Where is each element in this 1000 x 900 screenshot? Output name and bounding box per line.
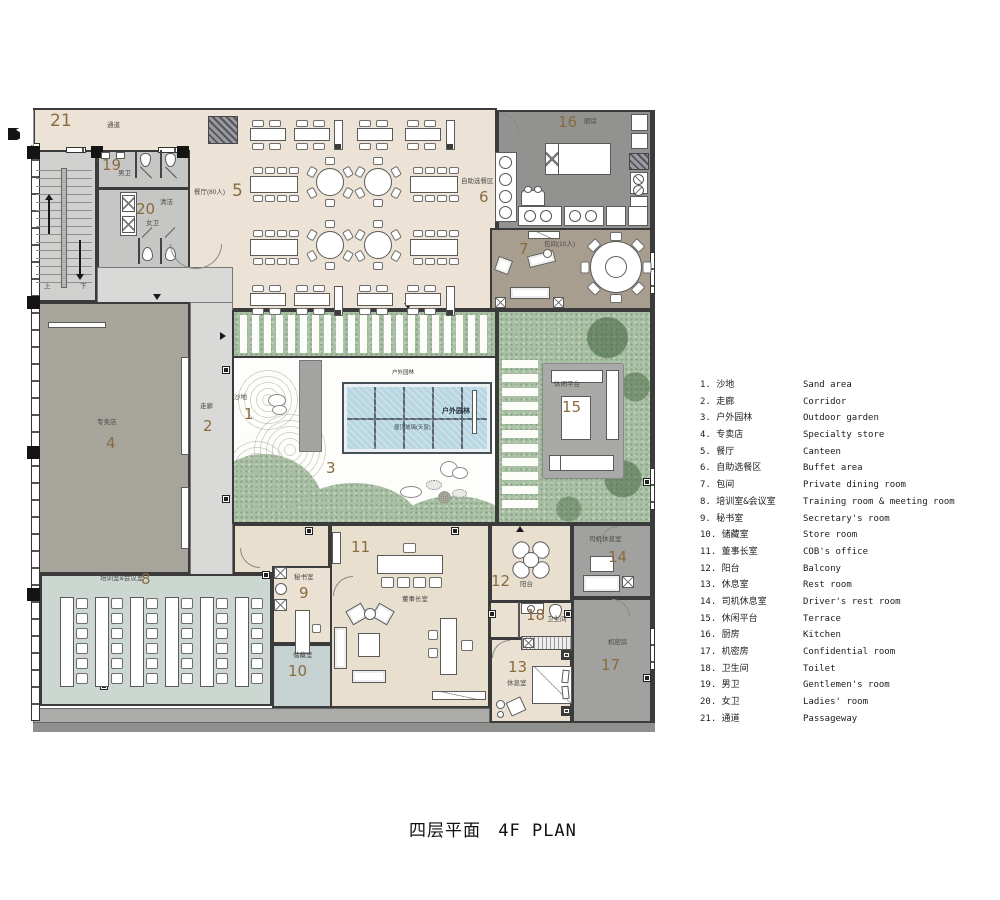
legend-item: 17. 机密房Confidential room bbox=[700, 644, 970, 661]
room-number-2: 2 bbox=[203, 419, 213, 434]
legend-en: COB's office bbox=[803, 544, 868, 561]
legend-item: 9. 秘书室Secretary's room bbox=[700, 511, 970, 528]
legend-en: Training room & meeting room bbox=[803, 494, 955, 511]
legend-item: 19. 男卫Gentlemen's room bbox=[700, 677, 970, 694]
legend-en: Balcony bbox=[803, 561, 841, 578]
room-number-14: 14 bbox=[608, 550, 627, 565]
legend-en: Outdoor garden bbox=[803, 410, 879, 427]
legend-zh: 15. 休闲平台 bbox=[700, 614, 758, 624]
legend-en: Kitchen bbox=[803, 627, 841, 644]
drawing-title: 四层平面 4F PLAN bbox=[409, 816, 577, 841]
legend-zh: 7. 包间 bbox=[700, 480, 734, 490]
room-label-16: 厨房 bbox=[584, 119, 597, 126]
room-number-18: 18 bbox=[526, 608, 545, 623]
label-skylight-name: 户外园林 bbox=[442, 408, 470, 415]
legend-item: 11. 董事长室COB's office bbox=[700, 544, 970, 561]
room-number-6: 6 bbox=[479, 190, 489, 205]
legend-en: Canteen bbox=[803, 444, 841, 461]
legend-zh: 3. 户外园林 bbox=[700, 413, 752, 423]
legend-zh: 9. 秘书室 bbox=[700, 514, 743, 524]
room-number-21: 21 bbox=[50, 113, 72, 130]
legend-zh: 17. 机密房 bbox=[700, 647, 749, 657]
legend-item: 6. 自助选餐区Buffet area bbox=[700, 460, 970, 477]
room-label-12: 阳台 bbox=[520, 582, 533, 589]
legend-item: 3. 户外园林Outdoor garden bbox=[700, 410, 970, 427]
room-label-18: 卫生间 bbox=[547, 617, 567, 624]
legend-en: Secretary's room bbox=[803, 511, 890, 528]
room-label-19: 男卫 bbox=[118, 171, 131, 178]
legend-en: Terrace bbox=[803, 611, 841, 628]
room-number-15: 15 bbox=[562, 400, 581, 415]
label-stair-down: 下 bbox=[80, 284, 87, 291]
room-label-11: 董事长室 bbox=[402, 597, 428, 604]
room-number-3: 3 bbox=[326, 461, 336, 476]
room-number-9: 9 bbox=[299, 586, 309, 601]
room-label-4: 专卖店 bbox=[97, 420, 117, 427]
room-number-7: 7 bbox=[519, 242, 529, 257]
legend-en: Corridor bbox=[803, 394, 846, 411]
legend-item: 2. 走廊Corridor bbox=[700, 394, 970, 411]
legend-zh: 11. 董事长室 bbox=[700, 547, 758, 557]
room-number-20: 20 bbox=[136, 202, 155, 217]
label-sky-top: 户外园林 bbox=[392, 371, 414, 377]
legend-zh: 8. 培训室&会议室 bbox=[700, 497, 776, 507]
legend-zh: 6. 自助选餐区 bbox=[700, 463, 761, 473]
legend-item: 16. 厨房Kitchen bbox=[700, 627, 970, 644]
room-label-2: 走廊 bbox=[200, 404, 213, 411]
legend-item: 15. 休闲平台Terrace bbox=[700, 611, 970, 628]
legend-item: 4. 专卖店Specialty store bbox=[700, 427, 970, 444]
legend-zh: 21. 通道 bbox=[700, 714, 740, 724]
room-number-4: 4 bbox=[106, 436, 116, 451]
legend-zh: 19. 男卫 bbox=[700, 680, 740, 690]
room-number-16: 16 bbox=[558, 115, 577, 130]
label-cleaning: 清洁 bbox=[160, 200, 173, 207]
legend-zh: 18. 卫生间 bbox=[700, 664, 749, 674]
legend-zh: 16. 厨房 bbox=[700, 630, 740, 640]
room-label-9: 秘书室 bbox=[294, 575, 314, 582]
room-label-8: 培训室&会议室 bbox=[100, 576, 143, 583]
legend-en: Sand area bbox=[803, 377, 852, 394]
room-number-10: 10 bbox=[288, 664, 307, 679]
legend-en: Buffet area bbox=[803, 460, 863, 477]
room-label-1: 沙地 bbox=[234, 395, 247, 402]
room-label-10: 储藏室 bbox=[293, 653, 313, 660]
room-label-17: 机密房 bbox=[608, 640, 628, 647]
room-label-21: 通道 bbox=[107, 123, 120, 130]
legend-en: Confidential room bbox=[803, 644, 895, 661]
title-en: 4F PLAN bbox=[498, 821, 577, 841]
legend-en: Driver's rest room bbox=[803, 594, 901, 611]
legend-en: Gentlemen's room bbox=[803, 677, 890, 694]
legend-zh: 2. 走廊 bbox=[700, 397, 734, 407]
legend-item: 10. 储藏室Store room bbox=[700, 527, 970, 544]
legend-item: 8. 培训室&会议室Training room & meeting room bbox=[700, 494, 970, 511]
label-skylight-sub: 屋顶玻璃(天窗) bbox=[394, 426, 431, 432]
legend-en: Passageway bbox=[803, 711, 857, 728]
legend-zh: 5. 餐厅 bbox=[700, 447, 734, 457]
legend-item: 21. 通道Passageway bbox=[700, 711, 970, 728]
legend-en: Store room bbox=[803, 527, 857, 544]
legend: 1. 沙地Sand area2. 走廊Corridor3. 户外园林Outdoo… bbox=[700, 377, 970, 727]
legend-zh: 10. 储藏室 bbox=[700, 530, 749, 540]
legend-item: 7. 包间Private dining room bbox=[700, 477, 970, 494]
legend-zh: 13. 休息室 bbox=[700, 580, 749, 590]
room-number-1: 1 bbox=[244, 407, 254, 422]
legend-en: Private dining room bbox=[803, 477, 906, 494]
room-label-20: 女卫 bbox=[146, 221, 159, 228]
legend-zh: 20. 女卫 bbox=[700, 697, 740, 707]
legend-item: 20. 女卫Ladies' room bbox=[700, 694, 970, 711]
legend-en: Rest room bbox=[803, 577, 852, 594]
legend-zh: 12. 阳台 bbox=[700, 564, 740, 574]
legend-zh: 14. 司机休息室 bbox=[700, 597, 767, 607]
legend-item: 5. 餐厅Canteen bbox=[700, 444, 970, 461]
legend-zh: 4. 专卖店 bbox=[700, 430, 743, 440]
legend-item: 18. 卫生间Toilet bbox=[700, 661, 970, 678]
floor-plan-sheet: 1沙地2走廊34专卖店5餐厅(80人)6自助选餐区7包间(10人)8培训室&会议… bbox=[0, 0, 1000, 900]
legend-en: Toilet bbox=[803, 661, 836, 678]
legend-item: 13. 休息室Rest room bbox=[700, 577, 970, 594]
room-number-11: 11 bbox=[351, 540, 370, 555]
label-stair-up: 上 bbox=[44, 284, 51, 291]
room-label-15: 休闲平台 bbox=[554, 382, 580, 389]
legend-item: 12. 阳台Balcony bbox=[700, 561, 970, 578]
legend-en: Ladies' room bbox=[803, 694, 868, 711]
room-label-6: 自助选餐区 bbox=[461, 179, 494, 186]
room-label-5: 餐厅(80人) bbox=[194, 190, 225, 197]
legend-item: 14. 司机休息室Driver's rest room bbox=[700, 594, 970, 611]
room-number-13: 13 bbox=[508, 660, 527, 675]
room-label-7: 包间(10人) bbox=[544, 242, 575, 249]
room-number-5: 5 bbox=[232, 183, 243, 200]
room-number-17: 17 bbox=[601, 658, 620, 673]
title-zh: 四层平面 bbox=[409, 821, 481, 841]
room-number-12: 12 bbox=[491, 574, 510, 589]
legend-item: 1. 沙地Sand area bbox=[700, 377, 970, 394]
room-label-14: 司机休息室 bbox=[589, 537, 622, 544]
room-label-13: 休息室 bbox=[507, 681, 527, 688]
legend-zh: 1. 沙地 bbox=[700, 380, 734, 390]
legend-en: Specialty store bbox=[803, 427, 884, 444]
